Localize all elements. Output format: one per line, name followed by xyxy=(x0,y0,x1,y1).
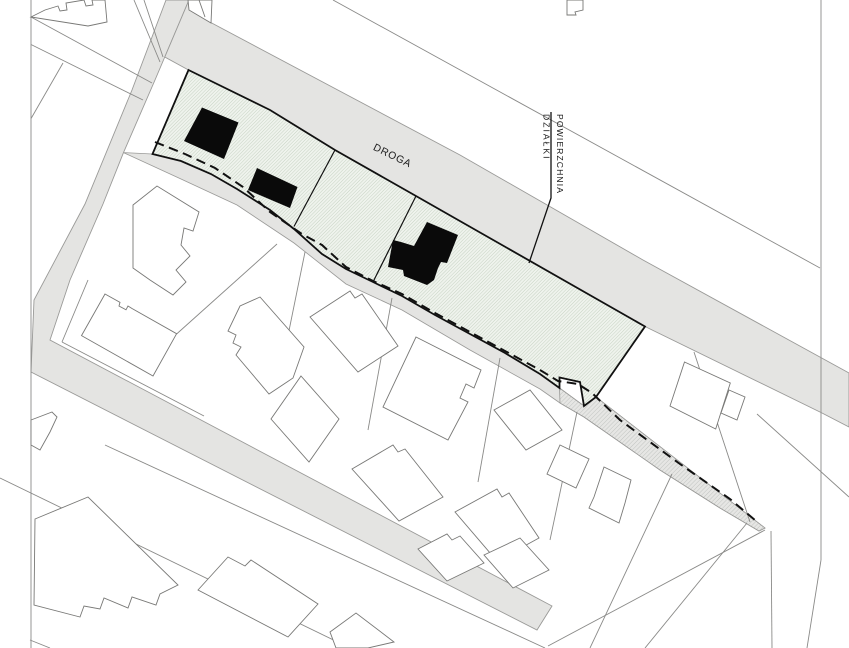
svg-text:POWIERZCHNIA: POWIERZCHNIA xyxy=(555,114,565,194)
svg-text:DZIAŁKI: DZIAŁKI xyxy=(542,114,552,160)
